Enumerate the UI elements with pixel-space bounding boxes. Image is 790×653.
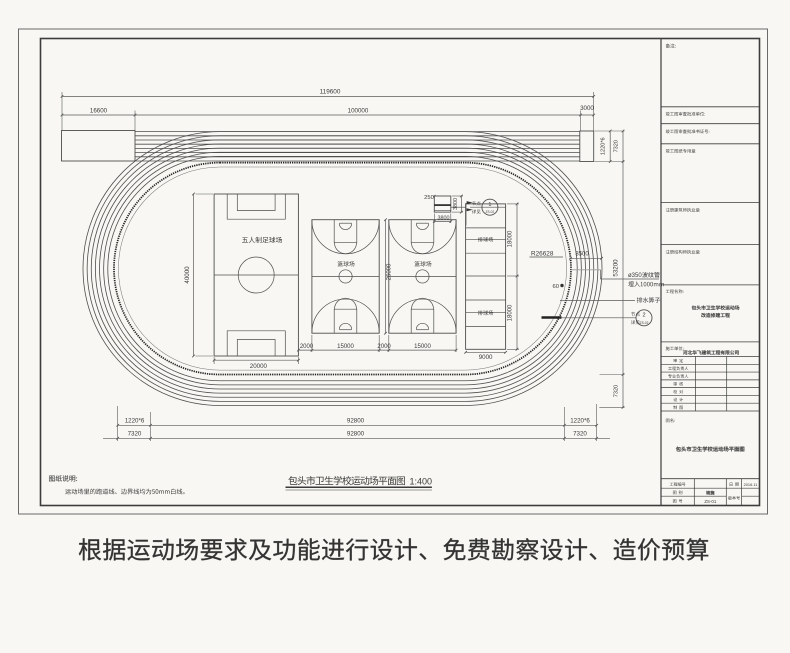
svg-text:40000: 40000 [184,266,191,284]
svg-text:ø350: ø350 [628,273,642,279]
svg-text:1220*6: 1220*6 [125,418,145,425]
svg-text:7320: 7320 [614,140,620,152]
svg-text:20000: 20000 [250,363,268,370]
svg-text:16600: 16600 [90,107,108,114]
svg-text:2016.11: 2016.11 [744,482,758,487]
svg-text:ZS-02: ZS-02 [640,321,649,325]
svg-text:92800: 92800 [347,418,365,425]
svg-text:1:400: 1:400 [410,476,433,486]
svg-text:3800: 3800 [453,198,459,210]
svg-text:100000: 100000 [348,107,369,114]
svg-text:1220*6: 1220*6 [570,418,590,425]
svg-text:1220*6: 1220*6 [601,137,607,155]
svg-text:ZS-02: ZS-02 [486,210,495,214]
svg-text:8500: 8500 [575,252,589,258]
svg-text:2000: 2000 [300,344,314,350]
svg-text:250: 250 [424,195,434,201]
svg-text:2: 2 [642,312,645,318]
svg-text:2000: 2000 [377,344,391,350]
svg-text:ZS-01: ZS-01 [704,499,717,504]
svg-text:9000: 9000 [479,354,493,361]
svg-text:7320: 7320 [573,431,587,438]
svg-text:1: 1 [488,202,491,208]
svg-text:92800: 92800 [347,431,365,438]
svg-text:18000: 18000 [508,230,514,247]
svg-text:15000: 15000 [414,344,431,350]
svg-text:26000: 26000 [387,263,393,280]
svg-text:53200: 53200 [613,259,620,277]
svg-text:15000: 15000 [337,344,354,350]
svg-text:R26628: R26628 [531,250,554,257]
svg-text:7320: 7320 [614,385,620,397]
svg-text:7320: 7320 [128,431,142,438]
svg-text:3800: 3800 [438,215,450,221]
svg-text:119600: 119600 [320,89,341,96]
svg-text:60: 60 [553,284,559,290]
svg-text:18000: 18000 [508,304,514,321]
svg-text:3000: 3000 [580,105,594,112]
